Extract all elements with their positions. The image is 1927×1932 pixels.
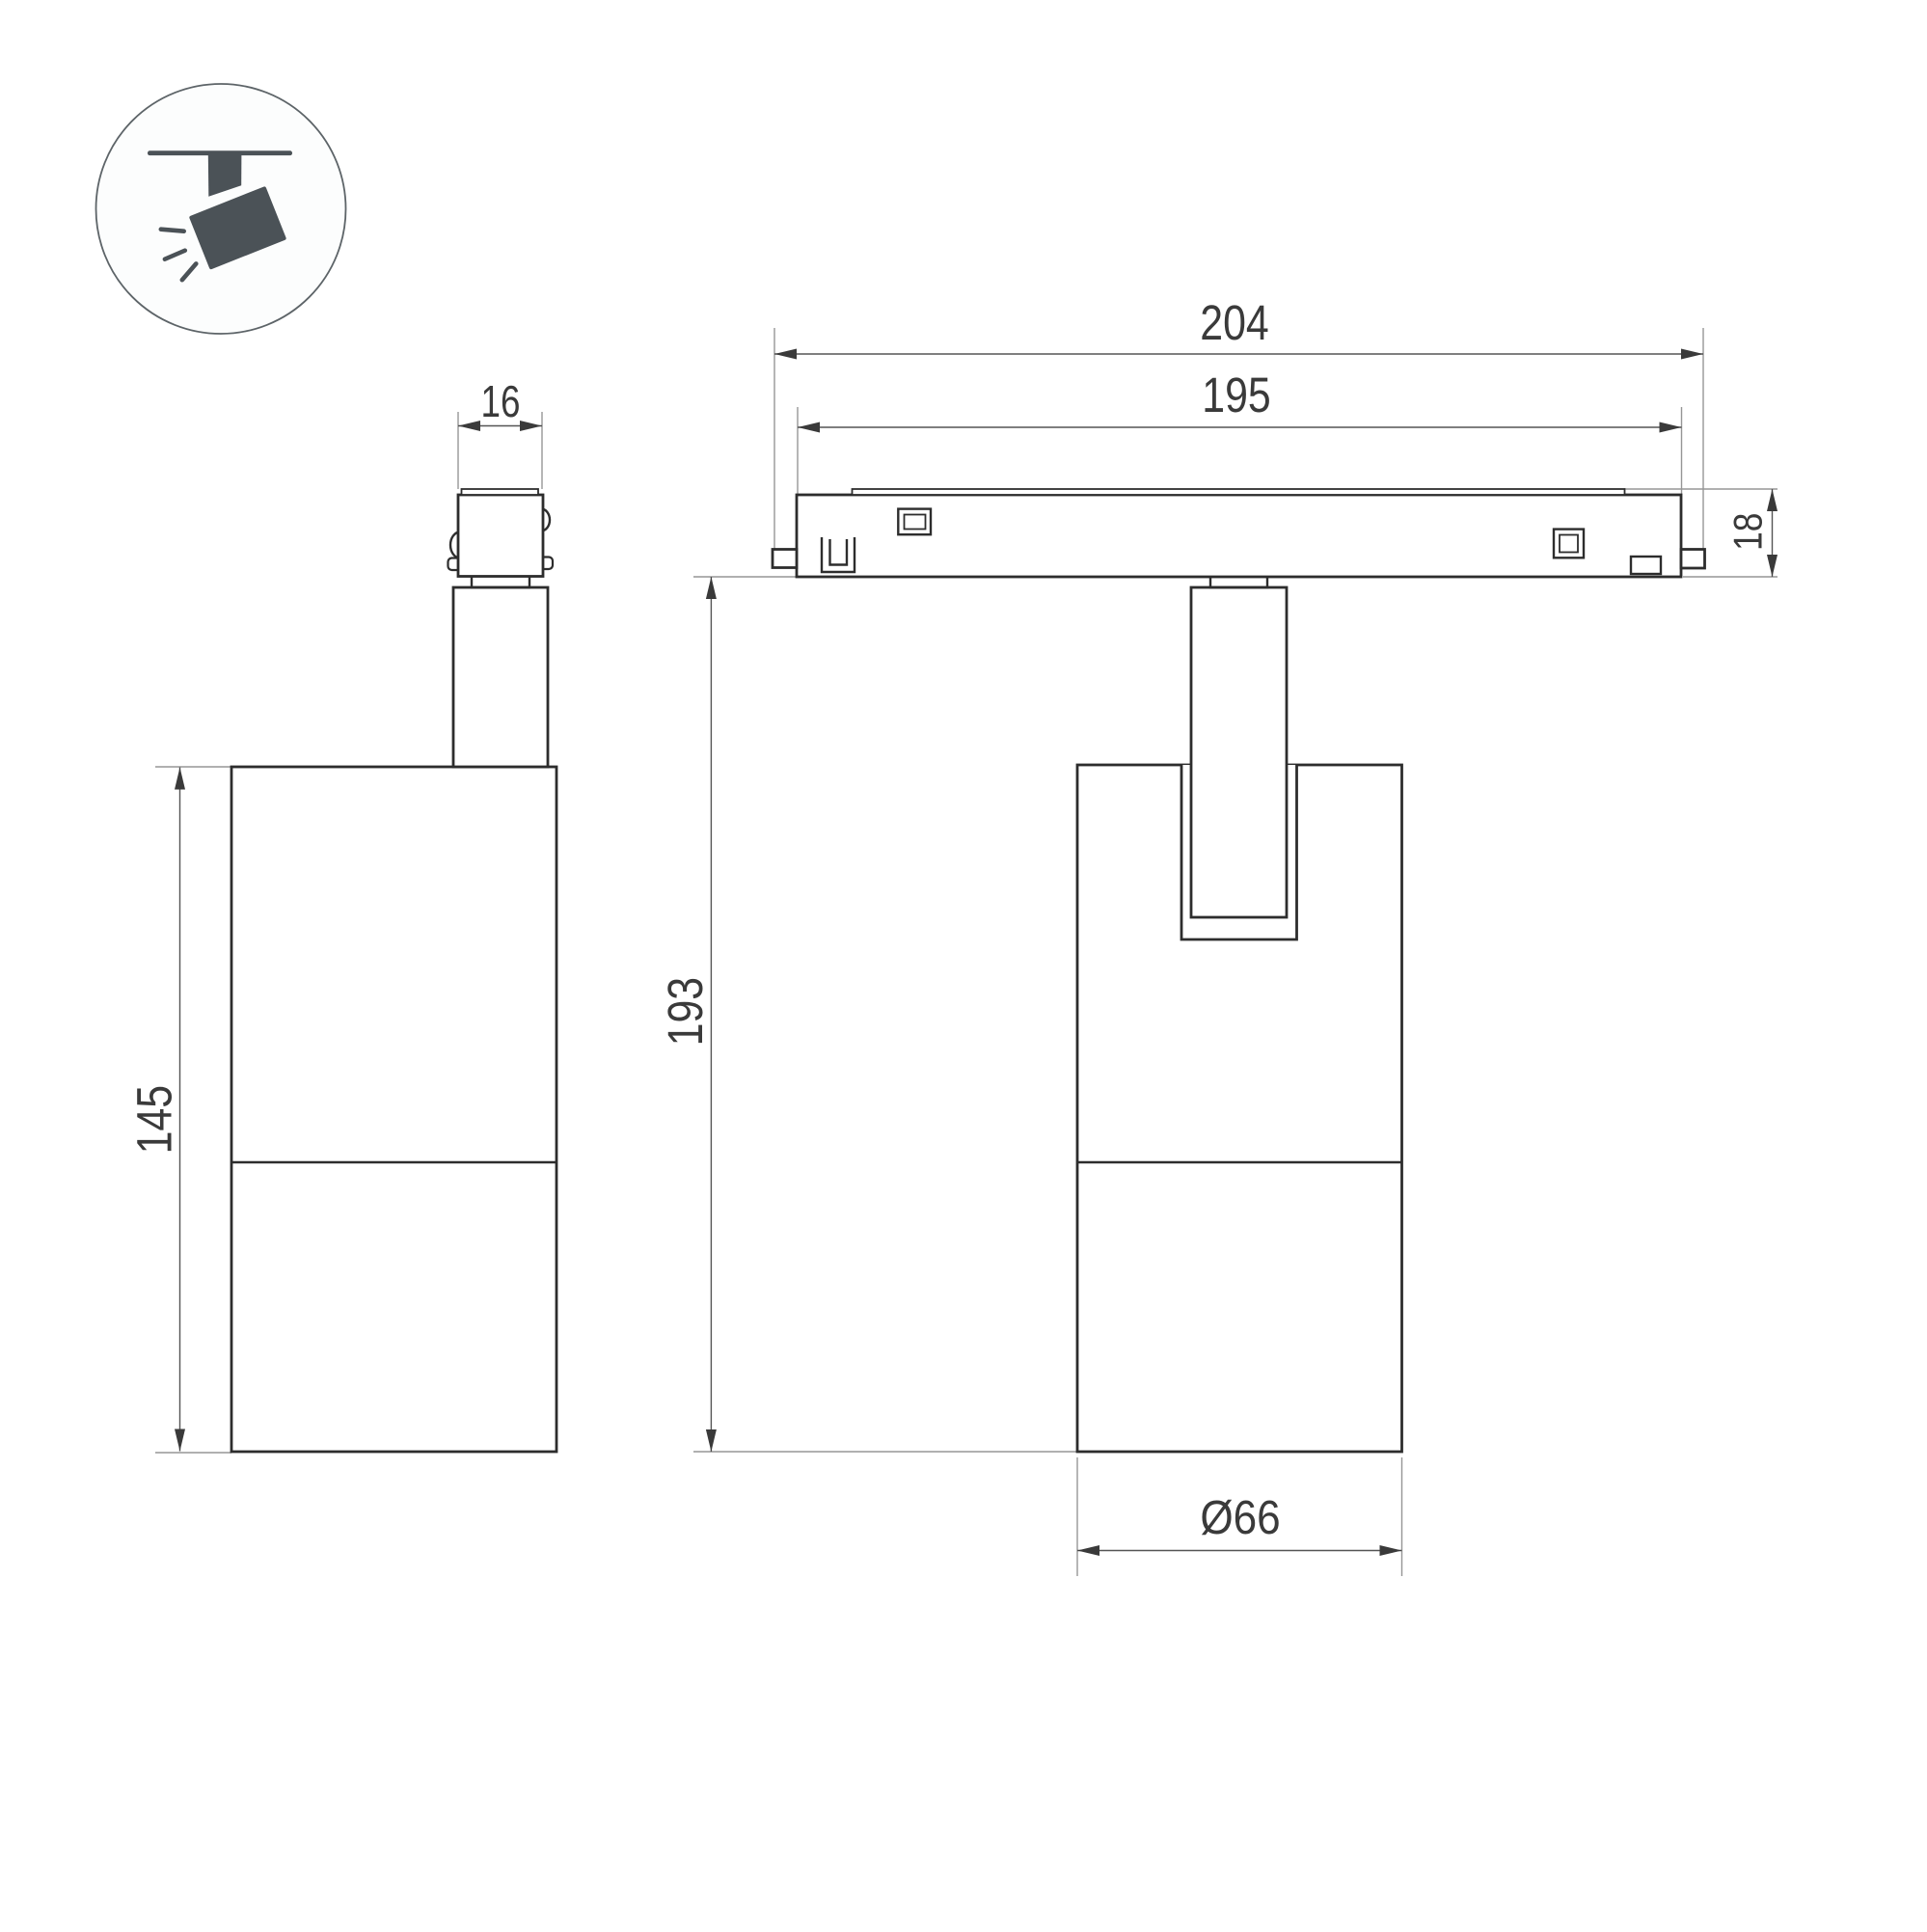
svg-text:145: 145 [126, 1085, 181, 1154]
svg-text:195: 195 [1202, 367, 1270, 422]
svg-text:16: 16 [481, 376, 521, 426]
svg-text:193: 193 [657, 977, 712, 1046]
svg-text:204: 204 [1200, 294, 1268, 349]
svg-text:Ø66: Ø66 [1200, 1491, 1280, 1544]
svg-text:18: 18 [1725, 513, 1771, 551]
